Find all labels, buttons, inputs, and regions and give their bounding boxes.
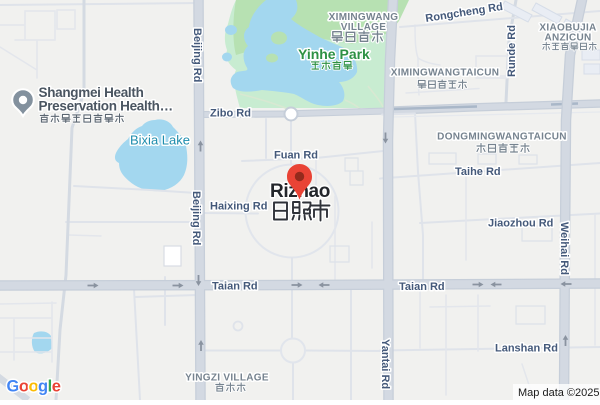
svg-text:Google: Google xyxy=(7,378,61,396)
svg-text:Lanshan Rd: Lanshan Rd xyxy=(495,343,558,355)
svg-text:Map data ©2025: Map data ©2025 xyxy=(518,387,600,399)
svg-text:Runde Rd: Runde Rd xyxy=(506,25,518,77)
svg-text:ANZICUN: ANZICUN xyxy=(544,33,591,44)
svg-text:Preservation Health…: Preservation Health… xyxy=(39,99,173,114)
svg-text:Yinhe Park: Yinhe Park xyxy=(298,46,370,62)
svg-text:Fuan Rd: Fuan Rd xyxy=(274,150,318,162)
svg-text:XIMINGWANGTAICUN: XIMINGWANGTAICUN xyxy=(391,68,500,79)
svg-text:YINGZI VILLAGE: YINGZI VILLAGE xyxy=(185,373,269,384)
svg-text:Jiaozhou Rd: Jiaozhou Rd xyxy=(488,218,553,230)
svg-text:Taian Rd: Taian Rd xyxy=(212,281,258,293)
svg-text:DONGMINGWANGTAICUN: DONGMINGWANGTAICUN xyxy=(437,132,567,143)
svg-text:Beijing Rd: Beijing Rd xyxy=(190,191,202,245)
svg-text:Beijing Rd: Beijing Rd xyxy=(191,28,203,82)
svg-text:Taian Rd: Taian Rd xyxy=(399,281,445,293)
svg-text:Yantai Rd: Yantai Rd xyxy=(379,339,391,389)
svg-text:Weihai Rd: Weihai Rd xyxy=(558,222,570,275)
svg-text:Taihe Rd: Taihe Rd xyxy=(455,166,501,178)
svg-text:Haixing Rd: Haixing Rd xyxy=(210,201,267,213)
svg-text:Zibo Rd: Zibo Rd xyxy=(210,108,251,120)
svg-text:Bixia Lake: Bixia Lake xyxy=(130,133,190,148)
